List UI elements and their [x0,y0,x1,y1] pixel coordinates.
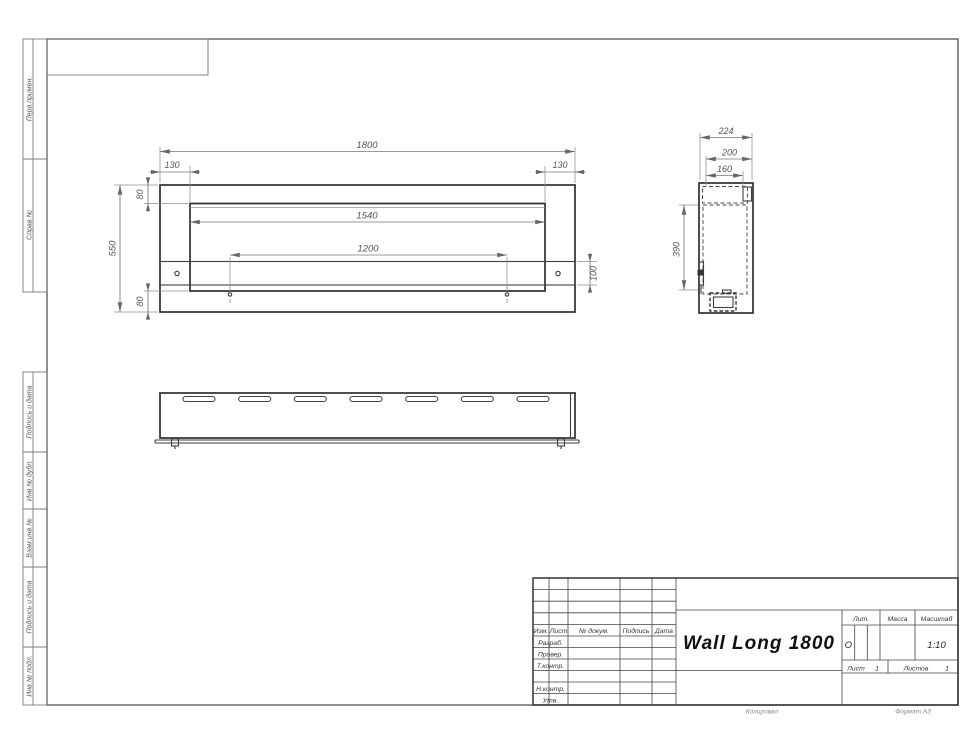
vent-slot [517,397,549,402]
tb-col-doc: № докум. [579,627,609,635]
dim-depth: 224 [717,126,733,136]
vent-slot [294,397,326,402]
dim-total-height: 550 [108,240,119,257]
drawing-sheet: Перв.примен. Справ.№ Подпись и дата Инв.… [0,0,970,749]
tb-col-sign: Подпись [623,627,650,635]
tb-role-razrab: Разраб. [538,639,563,647]
tb-col-izm: Изм. [534,628,549,635]
tb-role-tkontr: Т.контр. [537,663,565,670]
tb-scale-value: 1:10 [927,640,946,651]
tb-lit-value: О [845,640,853,651]
dim-bottom-offset: 80 [135,296,145,306]
margin-label-inv-podl: Инв.№ подл. [26,655,34,697]
tb-role-prover: Провер. [538,652,563,659]
margin-label-inv-dubl: Инв.№ дубл. [26,460,34,501]
dim-mount-span: 1200 [357,244,379,255]
tb-role-nkontr: Н.контр. [536,686,565,693]
footer-format-label: Формат А3 [895,709,931,716]
side-view-dimensions: 224 200 160 390 [672,126,753,290]
document-title: Wall Long 1800 [683,633,835,654]
dim-inner-width: 1540 [356,211,378,222]
footer-copied-label: Копировал [746,709,779,716]
tb-lit-label: Лит. [852,616,869,623]
side-view [698,183,754,313]
drawing-canvas: Перв.примен. Справ.№ Подпись и дата Инв.… [0,0,970,749]
front-mount-rail [160,262,575,286]
dim-rail-height: 100 [589,266,599,281]
tb-sheets-label: Листов [903,666,929,673]
dim-right-offset: 130 [552,160,567,170]
dim-top-offset: 80 [135,189,145,199]
margin-label-sprav-no: Справ.№ [27,210,34,240]
margin-label-vzam-inv: Взам.инв.№ [27,518,34,558]
margin-label-perv-primen: Перв.примен. [27,77,34,122]
drawing-frame [47,39,958,705]
tb-sheets-value: 1 [945,666,949,673]
margin-columns: Перв.примен. Справ.№ Подпись и дата Инв.… [23,39,47,705]
tb-sheet-label: Лист [846,666,865,673]
dim-top-opening: 160 [717,164,732,174]
rail-hole-left [175,271,179,275]
vent-slot [406,397,438,402]
tb-mass-label: Масса [887,616,907,623]
rail-hole-right [556,271,560,275]
tb-role-utv: Утв. [542,698,559,705]
bottom-view [155,393,579,449]
vent-slot [461,397,493,402]
tb-col-list: Лист [549,628,568,635]
top-left-stamp-box [47,39,208,75]
bottom-outer-contour [160,393,575,438]
sheet-footer: Копировал Формат А3 [746,709,931,716]
front-view-dimensions: 1800 130 130 80 550 80 1540 [108,140,599,320]
dim-opening-height: 390 [672,242,682,257]
vent-slot [350,397,382,402]
margin-label-podpis-data-1: Подпись и дата [26,385,34,438]
vent-slot [239,397,271,402]
vent-slot [183,397,215,402]
dim-left-offset: 130 [164,160,179,170]
title-block: Изм. Лист № докум. Подпись Дата Разраб. … [533,578,958,705]
tb-scale-label: Масштаб [921,615,954,623]
margin-label-podpis-data-2: Подпись и дата [26,580,34,633]
dim-total-width: 1800 [356,140,378,151]
tb-col-date: Дата [654,628,673,635]
dim-inner-depth: 200 [721,148,737,158]
tb-sheet-value: 1 [875,666,879,673]
